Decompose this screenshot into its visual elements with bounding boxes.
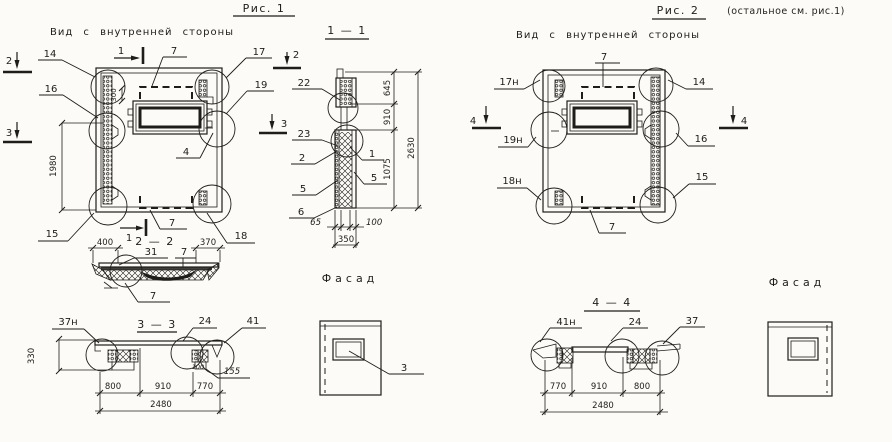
section44-body	[531, 339, 680, 375]
callout-23: 23	[298, 129, 311, 140]
marker-1-top: 1	[118, 46, 124, 57]
lintel-core	[340, 80, 352, 105]
dim-800: 800	[634, 382, 650, 392]
fig1-callouts: 14 16 15 17 19 18 7 7 4	[38, 46, 274, 243]
fig2: Рис. 2 (остальное см. рис.1) Вид с внутр…	[470, 4, 845, 233]
dashed-bracket-bottom	[140, 196, 192, 208]
callout-24: 24	[199, 316, 212, 327]
outer-skin	[336, 131, 340, 207]
fig1-title: Рис. 1	[243, 2, 286, 15]
dim-2630: 2630	[407, 137, 417, 159]
wall-core	[339, 132, 352, 207]
callout-16: 16	[695, 134, 708, 145]
section33-dimensions: 330 800 910 770 2480	[27, 336, 226, 414]
callout-5a: 5	[300, 184, 306, 195]
callout-14: 14	[44, 49, 57, 60]
facade2: Фасад	[768, 276, 832, 396]
callout-15: 15	[696, 172, 709, 183]
callout-7-top: 7	[601, 52, 607, 63]
callout-19n: 19н	[503, 135, 522, 146]
fig1: Рис. 1 Вид с внутренней стороны	[3, 2, 301, 244]
dim-100-small: 100	[192, 363, 204, 371]
facade2-title: Фасад	[769, 276, 826, 289]
marker-4-right: 4	[741, 116, 747, 127]
callout-15: 15	[46, 229, 59, 240]
section11-title: 1 — 1	[327, 24, 367, 37]
callout-6: 6	[298, 207, 304, 218]
dim-400: 400	[97, 238, 113, 248]
dim-2480: 2480	[150, 400, 172, 410]
dim-300: 300	[110, 88, 118, 101]
callout-17n: 17н	[499, 77, 518, 88]
fig2-subtitle: Вид с внутренней стороны	[516, 30, 700, 41]
callout-7-bottom: 7	[169, 218, 175, 229]
section-1-1: 1 — 1 22 23 2 5 6 1	[289, 24, 422, 248]
dim-2480: 2480	[592, 401, 614, 411]
callout-1: 1	[369, 149, 375, 160]
section11-body	[328, 69, 363, 208]
section11-dimensions: 645 910 1075 2630 65 100 350	[310, 69, 422, 248]
callout-155: 155	[224, 367, 240, 377]
corner-block	[199, 191, 207, 205]
skin-band	[101, 267, 212, 270]
dim-645: 645	[383, 80, 393, 96]
dim-330: 330	[27, 348, 37, 364]
callout-37: 37	[686, 316, 699, 327]
fig2-panel	[531, 68, 679, 224]
facade1: Фасад 3	[320, 272, 424, 395]
anchor-tab	[645, 125, 651, 139]
detail-circle	[536, 188, 572, 224]
fig2-callouts: 17н 19н 18н 14 16 15 7 7	[494, 52, 716, 233]
callout-41n: 41н	[556, 317, 575, 328]
fig2-note: (остальное см. рис.1)	[727, 6, 845, 17]
dim-1075: 1075	[383, 158, 393, 180]
dim-910: 910	[155, 382, 171, 392]
detail-circle	[643, 111, 679, 147]
dim-800: 800	[105, 382, 121, 392]
dim-1980: 1980	[49, 155, 59, 177]
section-3-3: 3 — 3 37н 24 41 155 100	[27, 316, 266, 414]
callout-3: 3	[401, 363, 407, 374]
dim-910: 910	[591, 382, 607, 392]
fig1-subtitle: Вид с внутренней стороны	[50, 27, 234, 38]
section-4-4: 4 — 4 41н 24 37	[531, 296, 705, 415]
detail-circle	[531, 112, 567, 148]
fig2-title: Рис. 2	[657, 4, 700, 17]
callout-4: 4	[183, 147, 189, 158]
dashed-bracket-bottom	[582, 196, 634, 208]
callout-19: 19	[255, 80, 268, 91]
marker-3-right: 3	[281, 119, 287, 130]
callout-7-top: 7	[181, 247, 187, 258]
section44-callouts: 41н 24 37	[540, 316, 705, 344]
facade1-title: Фасад	[322, 272, 379, 285]
callout-37n: 37н	[58, 317, 77, 328]
callout-31: 31	[145, 247, 158, 258]
fig2-window	[562, 101, 642, 134]
callout-18: 18	[235, 231, 248, 242]
callout-14: 14	[693, 77, 706, 88]
right-taper	[207, 263, 219, 280]
marker-1-bottom: 1	[126, 233, 132, 244]
drawing-sheet: Рис. 1 Вид с внутренней стороны	[0, 0, 892, 442]
corner-block	[199, 80, 207, 97]
dashed-bracket-top	[140, 87, 192, 99]
anchor-tab	[112, 125, 118, 139]
marker-3-left: 3	[6, 128, 12, 139]
callout-24: 24	[629, 317, 642, 328]
callout-7-bottom: 7	[150, 291, 156, 302]
callout-7-bottom: 7	[609, 222, 615, 233]
dim-65: 65	[310, 218, 321, 228]
dim-910: 910	[383, 109, 393, 125]
dim-770: 770	[550, 382, 566, 392]
callout-2: 2	[299, 153, 305, 164]
dashed-bracket-top	[582, 87, 634, 99]
fig1-dimensions: 1980 300	[49, 85, 125, 213]
section22-body	[92, 255, 219, 288]
anchor-tab	[645, 186, 651, 200]
corner-block	[555, 80, 563, 97]
section33-title: 3 — 3	[137, 318, 177, 331]
dim-100: 100	[366, 218, 382, 228]
section44-title: 4 — 4	[592, 296, 632, 309]
insulation-strip-right	[651, 77, 660, 205]
callout-22: 22	[298, 78, 311, 89]
marker-2-left: 2	[6, 56, 12, 67]
technical-drawing: Рис. 1 Вид с внутренней стороны	[0, 0, 892, 442]
dim-370: 370	[200, 238, 216, 248]
dim-350: 350	[338, 235, 354, 245]
marker-2-right: 2	[293, 50, 299, 61]
corner-block	[555, 191, 563, 205]
callout-5b: 5	[371, 173, 377, 184]
callout-41: 41	[247, 316, 260, 327]
callout-16: 16	[45, 84, 58, 95]
marker-4-left: 4	[470, 116, 476, 127]
section-2-2: 2 — 2 31 7 7 400 370	[88, 235, 225, 302]
callout-17: 17	[253, 47, 266, 58]
callout-7-top: 7	[171, 46, 177, 57]
callout-18n: 18н	[502, 176, 521, 187]
section33-body	[86, 337, 234, 374]
dim-770: 770	[197, 382, 213, 392]
